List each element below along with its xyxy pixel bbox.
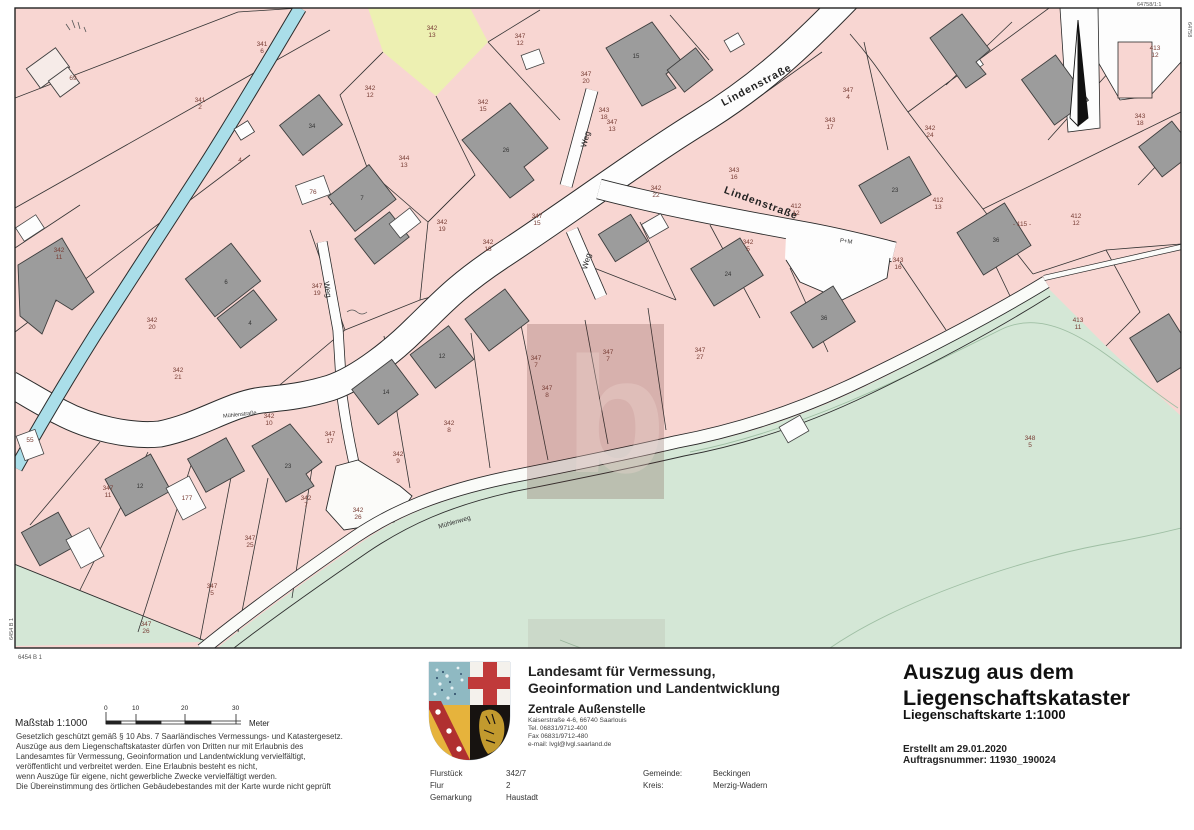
svg-text:30: 30 <box>232 705 240 712</box>
svg-text:Auszug aus dem: Auszug aus dem <box>903 660 1074 684</box>
svg-text:10: 10 <box>132 705 140 712</box>
svg-text:Fax 06831/9712-480: Fax 06831/9712-480 <box>528 733 588 740</box>
svg-text:Haustadt: Haustadt <box>506 793 539 802</box>
svg-text:342/7: 342/7 <box>506 769 527 778</box>
svg-text:Gemeinde:: Gemeinde: <box>643 769 682 778</box>
svg-text:64758: 64758 <box>1186 22 1192 37</box>
svg-text:Flur: Flur <box>430 781 444 790</box>
svg-text:Merzig-Wadern: Merzig-Wadern <box>713 781 767 790</box>
svg-text:23: 23 <box>892 188 899 194</box>
svg-text:b: b <box>565 323 666 507</box>
svg-text:Liegenschaftskarte 1:1000: Liegenschaftskarte 1:1000 <box>903 707 1066 722</box>
svg-text:24: 24 <box>725 272 732 278</box>
svg-text:14: 14 <box>383 390 390 396</box>
svg-text:Maßstab 1:1000: Maßstab 1:1000 <box>15 718 88 729</box>
svg-text:Kaiserstraße 4-6, 66740 Saarlo: Kaiserstraße 4-6, 66740 Saarlouis <box>528 717 627 724</box>
svg-text:0: 0 <box>104 705 108 712</box>
svg-text:34: 34 <box>309 124 316 130</box>
svg-text:wenn Auszüge für eigene, nicht: wenn Auszüge für eigene, nicht gewerblic… <box>15 772 277 781</box>
svg-text:Tel. 06831/9712-400: Tel. 06831/9712-400 <box>528 725 588 732</box>
svg-text:Die Übereinstimmung des örtlic: Die Übereinstimmung des örtlichen Gebäud… <box>16 782 332 791</box>
svg-text:12: 12 <box>439 354 446 360</box>
svg-text:15: 15 <box>633 54 640 60</box>
svg-text:36: 36 <box>821 316 828 322</box>
svg-text:Gesetzlich geschützt gemäß § 1: Gesetzlich geschützt gemäß § 10 Abs. 7 S… <box>16 732 343 741</box>
svg-text:20: 20 <box>181 705 189 712</box>
svg-text:Geoinformation und Landentwick: Geoinformation und Landentwicklung <box>528 680 780 696</box>
svg-text:Zentrale Außenstelle: Zentrale Außenstelle <box>528 702 646 716</box>
svg-text:Auszüge aus dem Liegenschaftsk: Auszüge aus dem Liegenschaftskataster dü… <box>16 742 303 751</box>
svg-text:Landesamtes für Vermessung, Ge: Landesamtes für Vermessung, Geoinformati… <box>16 752 306 761</box>
svg-text:69: 69 <box>69 75 77 82</box>
svg-text:4: 4 <box>238 157 242 164</box>
svg-text:76: 76 <box>309 189 317 196</box>
svg-text:Landesamt für Vermessung,: Landesamt für Vermessung, <box>528 663 716 679</box>
svg-text:177: 177 <box>182 495 193 502</box>
svg-text:Flurstück: Flurstück <box>430 769 463 778</box>
svg-text:12: 12 <box>137 484 144 490</box>
svg-text:Auftragsnummer: 11930_190024: Auftragsnummer: 11930_190024 <box>903 755 1056 766</box>
svg-text:Meter: Meter <box>249 719 270 728</box>
svg-text:6454 B 1: 6454 B 1 <box>9 618 15 640</box>
svg-text:6454 B 1: 6454 B 1 <box>18 655 43 661</box>
svg-text:36: 36 <box>993 238 1000 244</box>
svg-text:Beckingen: Beckingen <box>713 769 750 778</box>
svg-text:Gemarkung: Gemarkung <box>430 793 472 802</box>
svg-text:2: 2 <box>506 781 511 790</box>
svg-text:26: 26 <box>503 148 510 154</box>
svg-text:veröffentlicht und verbreitet: veröffentlicht und verbreitet werden. Ei… <box>16 762 257 771</box>
svg-text:55: 55 <box>26 437 34 444</box>
svg-text:e-mail: lvgl@lvgl.saarland.de: e-mail: lvgl@lvgl.saarland.de <box>528 741 612 748</box>
svg-text:Erstellt am 29.01.2020: Erstellt am 29.01.2020 <box>903 744 1007 755</box>
svg-text:64758/1:1: 64758/1:1 <box>1137 2 1161 8</box>
svg-text:- 115 -: - 115 - <box>1013 221 1031 228</box>
svg-text:Kreis:: Kreis: <box>643 781 663 790</box>
svg-text:23: 23 <box>285 464 292 470</box>
